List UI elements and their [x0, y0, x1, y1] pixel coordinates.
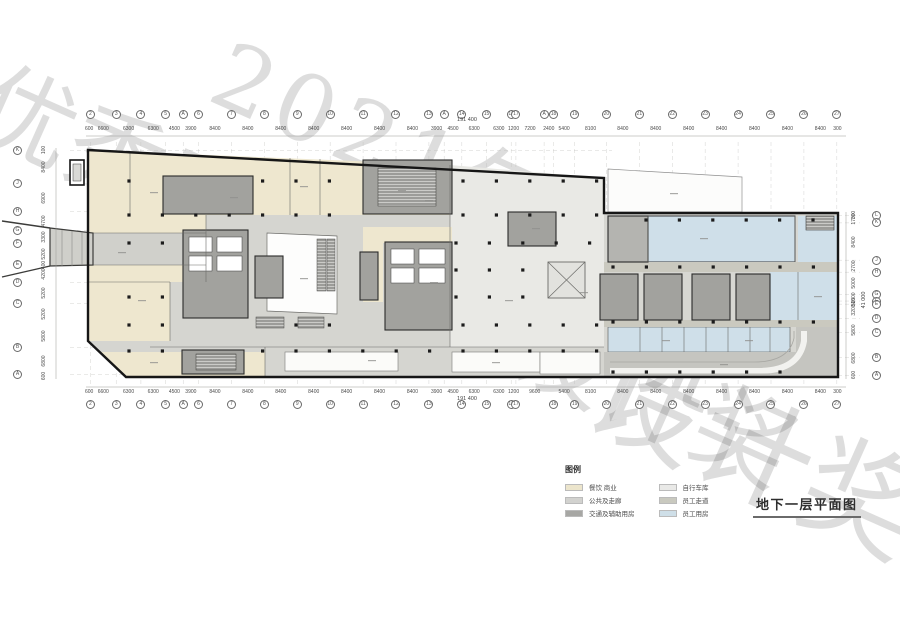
exterior-stair-box — [70, 160, 84, 185]
legend-swatch-dining — [565, 484, 583, 491]
legend-swatch-staff-corridor — [659, 497, 677, 504]
west-entrance-tunnel — [2, 221, 93, 277]
legend-item-dining: 餐饮 商业 — [565, 483, 635, 491]
legend-swatch-public — [565, 497, 583, 504]
legend-label-public: 公共及走廊 — [589, 495, 622, 505]
bicycle-ramp — [548, 262, 585, 298]
legend: 图例 餐饮 商业 公共及走廊 交通及辅助用房 自行车库 — [565, 464, 709, 517]
legend-label-bicycle: 自行车库 — [683, 482, 709, 492]
legend-label-dining: 餐饮 商业 — [589, 482, 617, 492]
legend-item-staff-corridor: 员工走道 — [659, 496, 709, 504]
floor-plan-sheet: 优秀工程勘察设计奖 2021年北京市 设计奖 — [0, 0, 900, 636]
legend-item-public: 公共及走廊 — [565, 496, 635, 504]
legend-label-staff-corridor: 员工走道 — [683, 495, 709, 505]
legend-swatch-staff-room — [659, 510, 677, 517]
drawing-title: 地下一层平面图 — [753, 494, 861, 518]
legend-item-transport: 交通及辅助用房 — [565, 509, 635, 517]
legend-swatch-transport — [565, 510, 583, 517]
legend-label-staff-room: 员工用房 — [683, 508, 709, 518]
legend-item-bicycle: 自行车库 — [659, 483, 709, 491]
legend-item-staff-room: 员工用房 — [659, 509, 709, 517]
floor-plan-drawing — [0, 0, 900, 636]
legend-swatch-bicycle — [659, 484, 677, 491]
legend-heading: 图例 — [565, 464, 709, 475]
legend-label-transport: 交通及辅助用房 — [589, 508, 635, 518]
